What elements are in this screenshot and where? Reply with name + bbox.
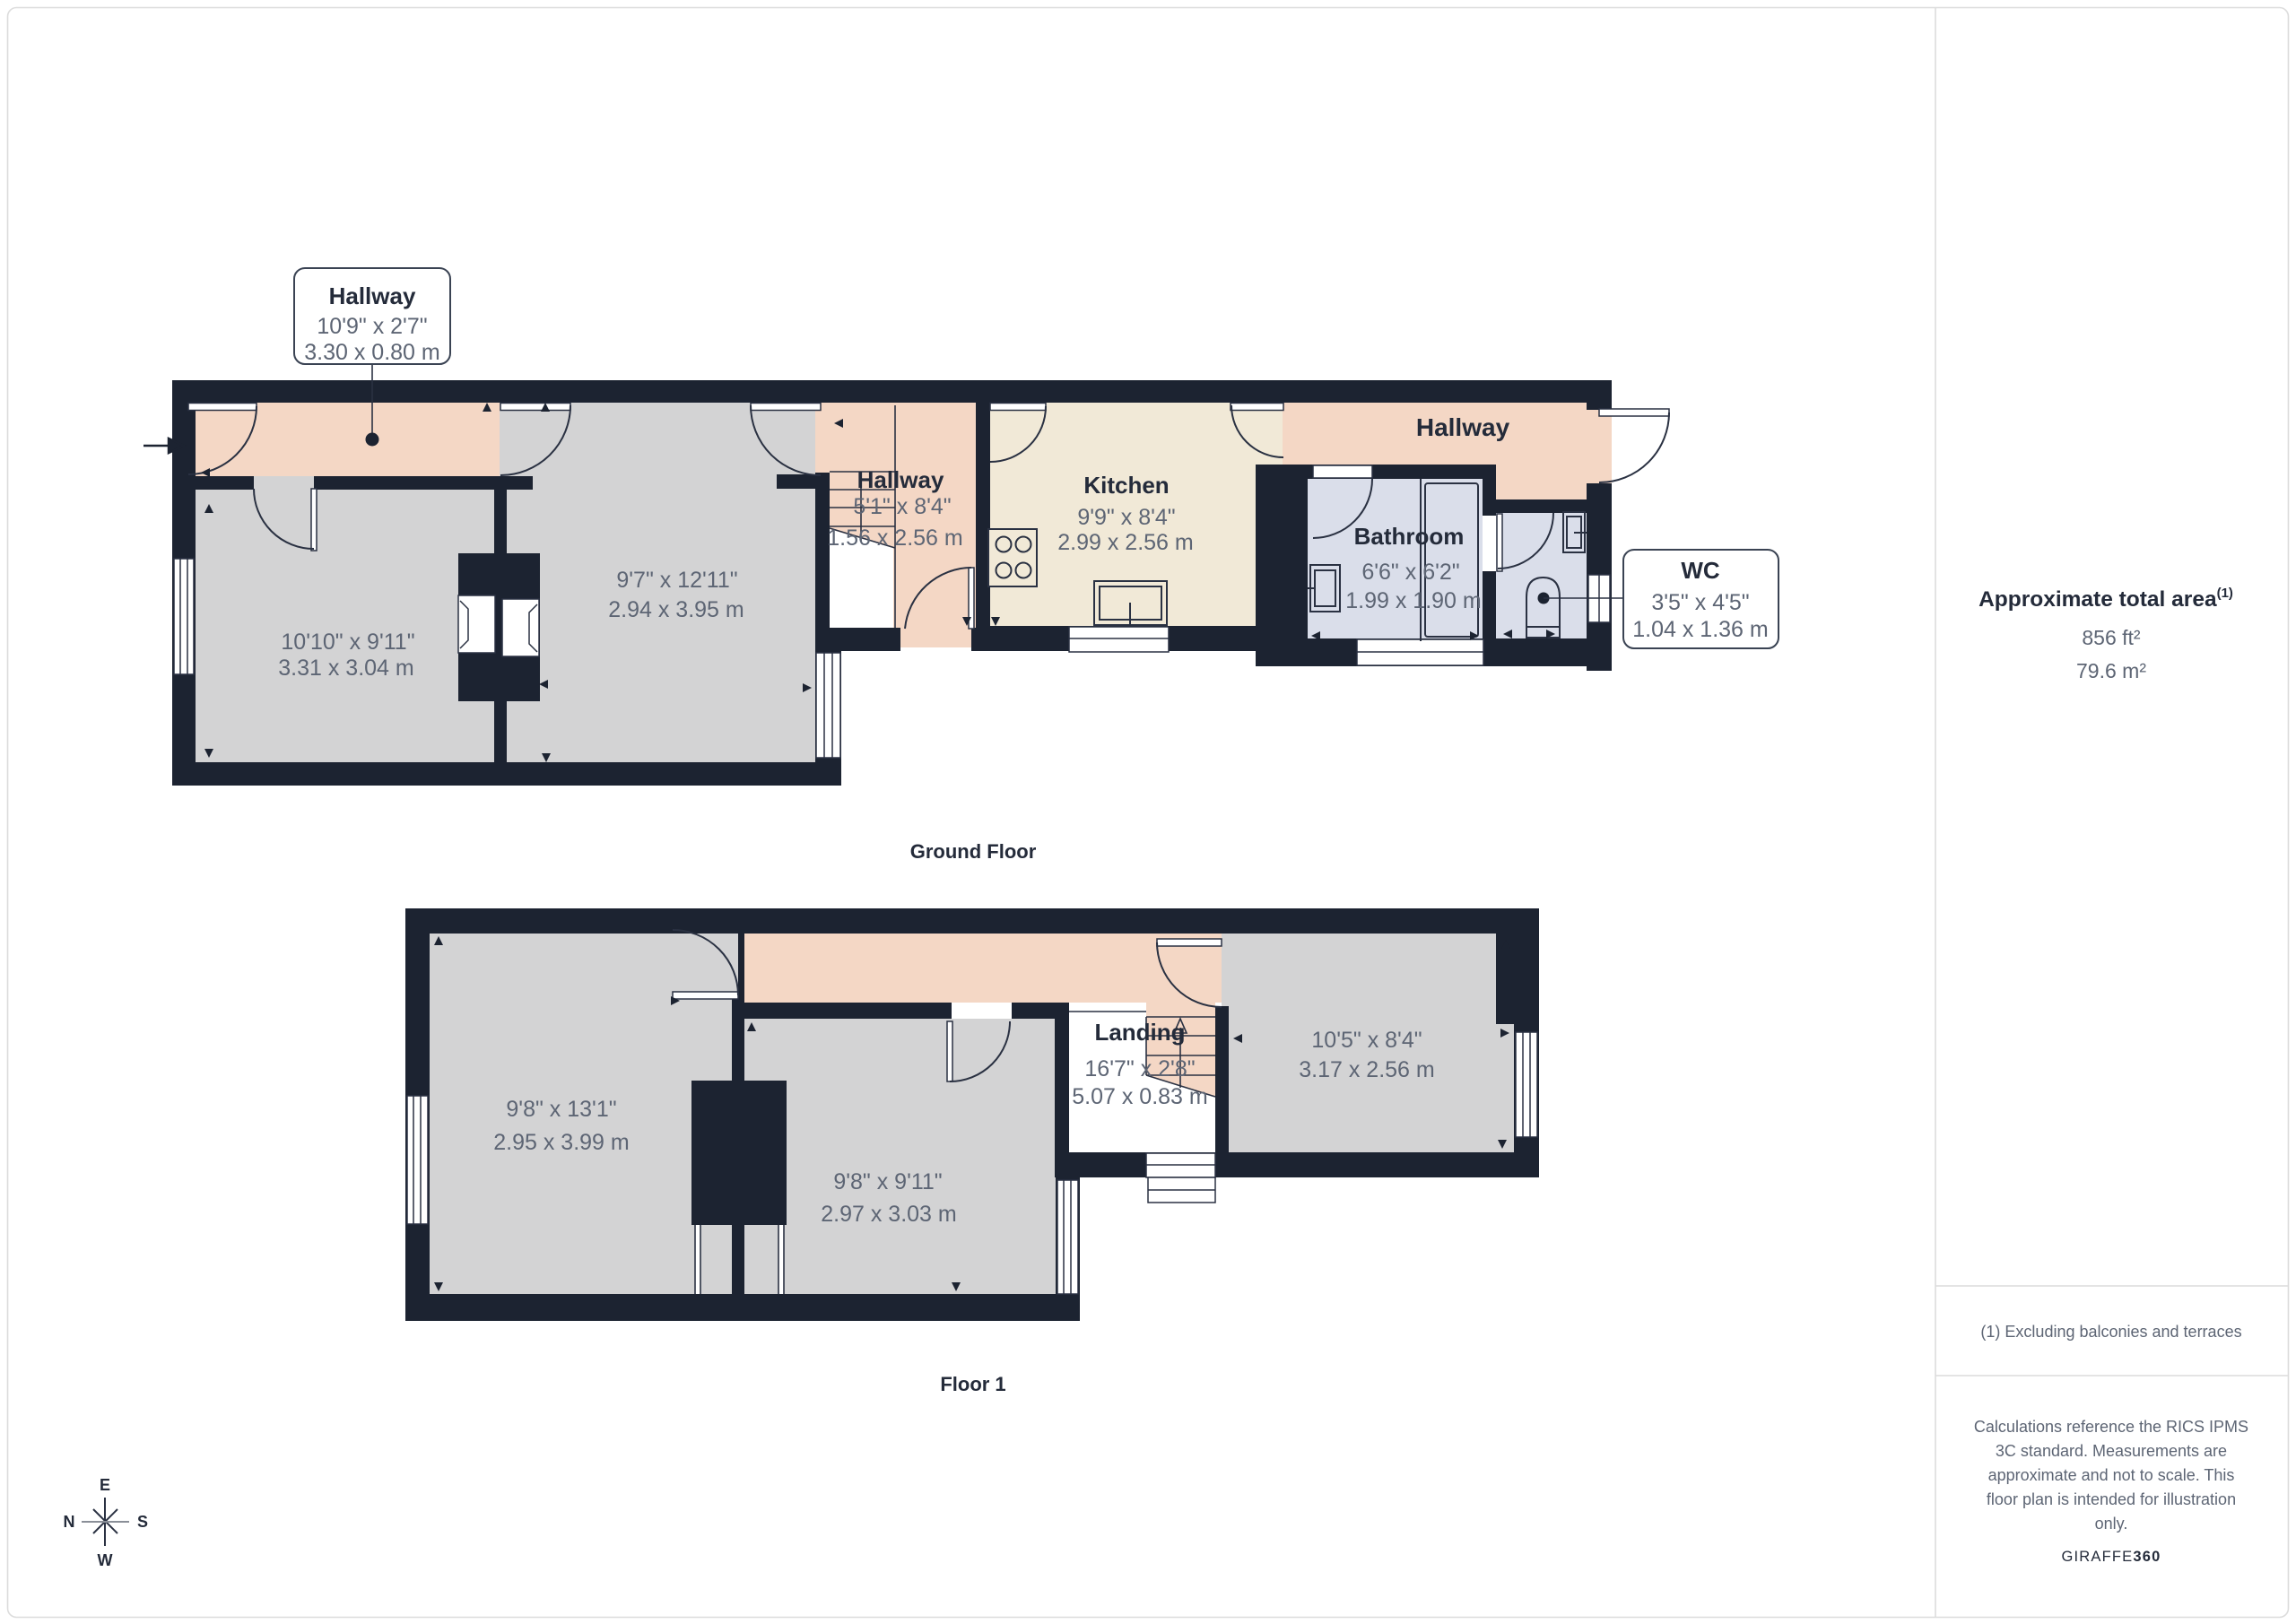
svg-text:only.: only. (2095, 1515, 2128, 1533)
svg-text:(1) Excluding balconies and te: (1) Excluding balconies and terraces (1980, 1323, 2241, 1341)
svg-text:Hallway: Hallway (857, 466, 944, 493)
svg-text:W: W (98, 1551, 113, 1569)
svg-text:Calculations reference the RIC: Calculations reference the RICS IPMS (1974, 1418, 2248, 1436)
svg-text:Floor 1: Floor 1 (940, 1373, 1005, 1395)
svg-text:3.31 x 3.04 m: 3.31 x 3.04 m (278, 656, 413, 681)
svg-text:Hallway: Hallway (329, 282, 416, 309)
svg-text:GIRAFFE360: GIRAFFE360 (2061, 1549, 2161, 1565)
svg-text:E: E (100, 1476, 110, 1494)
svg-text:Kitchen: Kitchen (1083, 472, 1169, 499)
svg-text:1.04 x 1.36 m: 1.04 x 1.36 m (1632, 617, 1768, 642)
svg-text:79.6 m²: 79.6 m² (2076, 659, 2146, 682)
svg-text:2.95 x 3.99 m: 2.95 x 3.99 m (493, 1130, 629, 1155)
svg-text:1.56 x 2.56 m: 1.56 x 2.56 m (827, 525, 962, 551)
svg-text:WC: WC (1681, 557, 1720, 584)
svg-text:5.07 x 0.83 m: 5.07 x 0.83 m (1072, 1084, 1207, 1109)
svg-text:approximate and not to scale.: approximate and not to scale. This (1988, 1466, 2235, 1484)
svg-text:3C standard. Measurements are: 3C standard. Measurements are (1996, 1442, 2227, 1460)
svg-text:2.94 x 3.95 m: 2.94 x 3.95 m (608, 597, 744, 622)
svg-text:10'10" x 9'11": 10'10" x 9'11" (281, 630, 414, 655)
svg-text:Approximate total area(1): Approximate total area(1) (1979, 586, 2233, 612)
svg-text:10'5" x 8'4": 10'5" x 8'4" (1311, 1028, 1422, 1053)
svg-text:3'5" x 4'5": 3'5" x 4'5" (1651, 590, 1749, 615)
svg-text:Landing: Landing (1094, 1019, 1185, 1046)
svg-text:9'8" x 9'11": 9'8" x 9'11" (833, 1169, 942, 1194)
svg-text:9'8" x 13'1": 9'8" x 13'1" (506, 1097, 616, 1122)
svg-text:2.97 x 3.03 m: 2.97 x 3.03 m (821, 1202, 956, 1227)
svg-text:Ground Floor: Ground Floor (910, 840, 1037, 863)
svg-text:6'6" x 6'2": 6'6" x 6'2" (1361, 560, 1459, 585)
svg-text:856 ft²: 856 ft² (2082, 626, 2141, 649)
svg-text:9'7" x 12'11": 9'7" x 12'11" (616, 568, 737, 593)
svg-text:floor plan is intended for ill: floor plan is intended for illustration (1987, 1490, 2236, 1508)
svg-text:9'9" x 8'4": 9'9" x 8'4" (1077, 505, 1175, 530)
svg-text:Hallway: Hallway (1416, 413, 1510, 441)
svg-text:2.99 x 2.56 m: 2.99 x 2.56 m (1057, 530, 1193, 555)
svg-text:Bathroom: Bathroom (1354, 523, 1465, 550)
svg-text:3.17 x 2.56 m: 3.17 x 2.56 m (1299, 1057, 1434, 1082)
svg-text:5'1" x 8'4": 5'1" x 8'4" (853, 494, 951, 519)
svg-text:N: N (64, 1513, 75, 1531)
svg-text:16'7" x 2'8": 16'7" x 2'8" (1084, 1056, 1195, 1081)
svg-text:10'9" x 2'7": 10'9" x 2'7" (317, 314, 427, 339)
svg-text:S: S (137, 1513, 148, 1531)
svg-text:3.30 x 0.80 m: 3.30 x 0.80 m (304, 340, 439, 365)
svg-text:1.99 x 1.90 m: 1.99 x 1.90 m (1345, 588, 1481, 613)
